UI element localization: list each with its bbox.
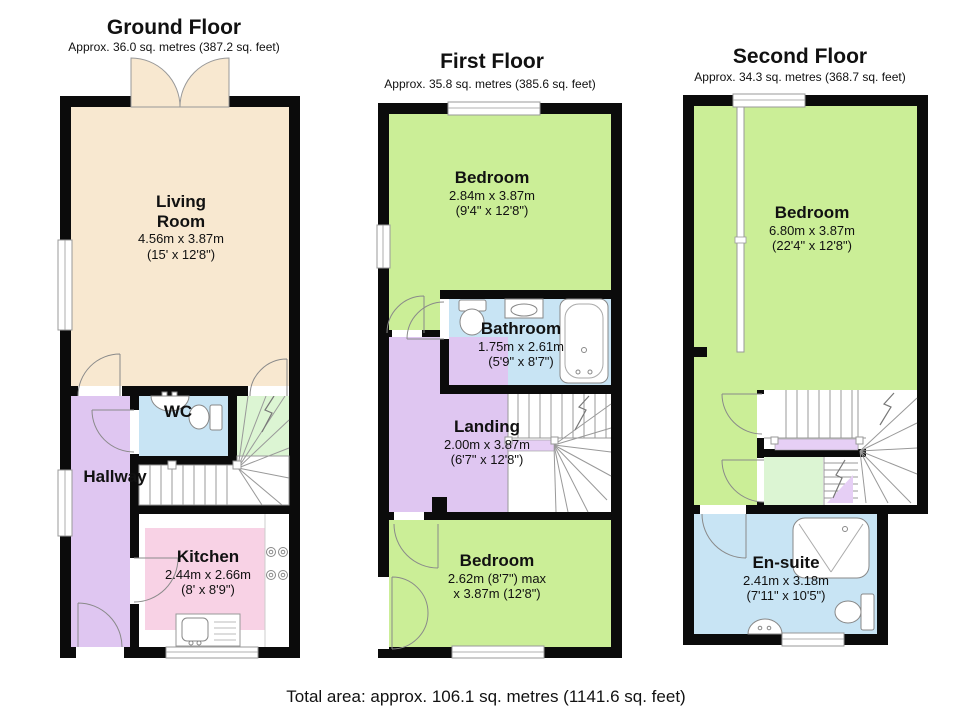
floorplan-page: Ground Floor Approx. 36.0 sq. metres (38… xyxy=(0,0,980,712)
room-label-landing: Landing 2.00m x 3.87m (6'7" x 12'8") xyxy=(444,417,530,467)
toilet-icon xyxy=(835,601,861,623)
room-label-hallway: Hallway xyxy=(83,467,146,487)
room-name: Bathroom xyxy=(478,319,564,339)
room-name: Landing xyxy=(444,417,530,437)
room-name: Living Room xyxy=(143,192,219,231)
room-dim-metric: 2.41m x 3.18m xyxy=(743,573,829,588)
room-label-wc: WC xyxy=(164,402,192,422)
window xyxy=(448,102,540,115)
room-name: Bedroom xyxy=(448,551,546,571)
half-landing xyxy=(775,439,858,450)
window xyxy=(782,633,844,646)
window xyxy=(377,225,390,268)
room-label-bedroom-front: Bedroom 2.84m x 3.87m (9'4" x 12'8") xyxy=(449,168,535,218)
room-dim-imperial: x 3.87m (12'8") xyxy=(448,586,546,601)
ground-floor-title: Ground Floor xyxy=(107,16,241,40)
partition-screen xyxy=(737,107,744,352)
room-dim-metric: 2.84m x 3.87m xyxy=(449,188,535,203)
room-dim-imperial: (5'9" x 8'7") xyxy=(478,354,564,369)
newel-post xyxy=(168,461,176,469)
room-dim-imperial: (22'4" x 12'8") xyxy=(769,238,855,253)
room-name: En-suite xyxy=(743,553,829,573)
room-dim-metric: 1.75m x 2.61m xyxy=(478,339,564,354)
second-floor-title: Second Floor xyxy=(733,45,867,69)
french-doors xyxy=(131,58,229,107)
partition-joint xyxy=(735,237,746,243)
room-dim-metric: 6.80m x 3.87m xyxy=(769,223,855,238)
stair-turn-area xyxy=(764,457,823,505)
newel-post xyxy=(551,437,558,444)
room-label-kitchen: Kitchen 2.44m x 2.66m (8' x 8'9") xyxy=(165,547,251,597)
room-dim-imperial: (15' x 12'8") xyxy=(138,247,224,262)
second-floor-area: Approx. 34.3 sq. metres (368.7 sq. feet) xyxy=(694,70,905,84)
ground-floor-area: Approx. 36.0 sq. metres (387.2 sq. feet) xyxy=(68,40,279,54)
newel-post xyxy=(233,461,241,469)
room-dim-imperial: (9'4" x 12'8") xyxy=(449,203,535,218)
room-dim-imperial: (7'11" x 10'5") xyxy=(743,588,829,603)
first-floor-area: Approx. 35.8 sq. metres (385.6 sq. feet) xyxy=(384,77,595,91)
newel-post xyxy=(771,437,778,444)
room-label-bedroom-second: Bedroom 6.80m x 3.87m (22'4" x 12'8") xyxy=(769,203,855,253)
room-name: Kitchen xyxy=(165,547,251,567)
room-dim-imperial: (8' x 8'9") xyxy=(165,582,251,597)
room-dim-metric: 2.44m x 2.66m xyxy=(165,567,251,582)
room-name: Bedroom xyxy=(769,203,855,223)
room-label-bedroom-back: Bedroom 2.62m (8'7") max x 3.87m (12'8") xyxy=(448,551,546,601)
room-dim-imperial: (6'7" x 12'8") xyxy=(444,452,530,467)
total-area-text: Total area: approx. 106.1 sq. metres (11… xyxy=(286,687,685,707)
room-label-living-room: Living Room 4.56m x 3.87m (15' x 12'8") xyxy=(138,192,224,262)
window xyxy=(733,94,805,107)
room-name: Bedroom xyxy=(449,168,535,188)
room-label-ensuite: En-suite 2.41m x 3.18m (7'11" x 10'5") xyxy=(743,553,829,603)
room-dim-metric: 4.56m x 3.87m xyxy=(138,232,224,247)
kitchen-sink-icon xyxy=(176,614,240,646)
first-floor-title: First Floor xyxy=(440,50,544,74)
room-dim-metric: 2.62m (8'7") max xyxy=(448,571,546,586)
room-label-bathroom: Bathroom 1.75m x 2.61m (5'9" x 8'7") xyxy=(478,319,564,369)
room-name: Hallway xyxy=(83,467,146,487)
room-name: WC xyxy=(164,402,192,422)
bedroom-top-column xyxy=(694,390,757,505)
room-dim-metric: 2.00m x 3.87m xyxy=(444,437,530,452)
newel-post xyxy=(856,437,863,444)
window xyxy=(166,647,258,658)
